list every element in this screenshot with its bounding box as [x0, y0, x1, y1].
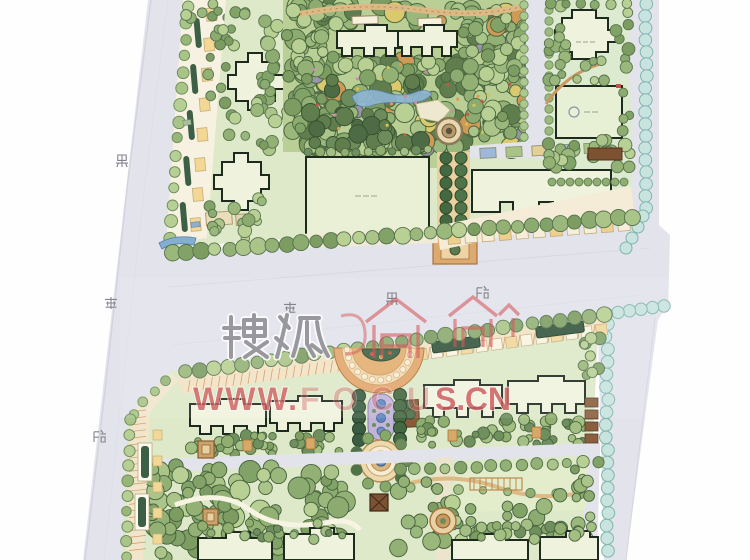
svg-text:WWW.FOCUS.CN: WWW.FOCUS.CN: [193, 381, 511, 417]
